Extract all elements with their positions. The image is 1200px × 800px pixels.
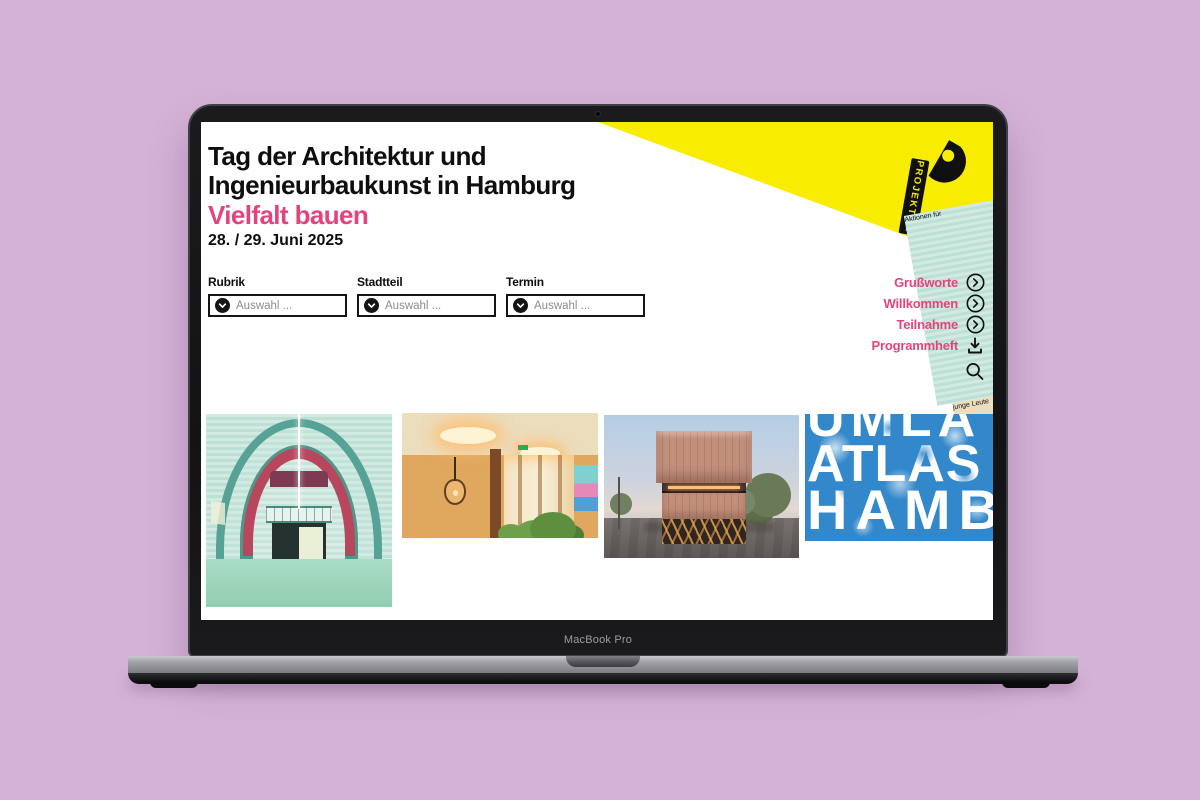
filter-termin-value: Auswahl ... (534, 300, 590, 312)
nav-grussworte[interactable]: Grußworte (894, 272, 985, 293)
search-icon (965, 361, 985, 381)
webcam-icon (596, 112, 600, 116)
page-title: Tag der Architektur und Ingenieurbaukuns… (208, 142, 575, 200)
nav-teilnahme[interactable]: Teilnahme (896, 314, 985, 335)
filter-stadtteil-label: Stadtteil (357, 275, 496, 289)
ceiling-light (440, 427, 496, 444)
chevron-circle-icon (965, 273, 985, 293)
filter-termin-label: Termin (506, 275, 645, 289)
laptop-base-underside (128, 673, 1078, 684)
chevron-down-icon (513, 298, 528, 313)
tree (610, 493, 632, 515)
nav-willkommen[interactable]: Willkommen (884, 293, 985, 314)
chevron-down-icon (364, 298, 379, 313)
nav-grussworte-label: Grußworte (894, 275, 958, 290)
laptop-base (128, 656, 1078, 673)
filter-rubrik-dropdown[interactable]: Auswahl ... (208, 294, 347, 317)
lid-notch (566, 656, 640, 667)
search-button[interactable] (965, 359, 985, 383)
browser-screen: PROJEKTOR Aktionen für junge Leute Tag d… (201, 122, 993, 620)
filter-termin: Termin Auswahl ... (506, 275, 645, 317)
laptop-lid: PROJEKTOR Aktionen für junge Leute Tag d… (188, 104, 1008, 657)
filter-stadtteil-dropdown[interactable]: Auswahl ... (357, 294, 496, 317)
plant (530, 512, 576, 538)
atlas-text: UMLA ATLAS HAMB (807, 414, 993, 532)
filter-stadtteil-value: Auswahl ... (385, 300, 441, 312)
filter-termin-dropdown[interactable]: Auswahl ... (506, 294, 645, 317)
chevron-circle-icon (965, 294, 985, 314)
station-floor (206, 559, 392, 607)
site-header: Tag der Architektur und Ingenieurbaukuns… (208, 142, 575, 250)
nav-programmheft[interactable]: Programmheft (872, 335, 985, 356)
nav-teilnahme-label: Teilnahme (896, 317, 958, 332)
pendant-lamp (444, 479, 466, 505)
filter-rubrik: Rubrik Auswahl ... (208, 275, 347, 317)
page-subtitle: Vielfalt bauen (208, 201, 575, 229)
filter-stadtteil: Stadtteil Auswahl ... (357, 275, 496, 317)
nav-programmheft-label: Programmheft (872, 338, 958, 353)
gallery-item-wood-interior[interactable] (402, 413, 598, 538)
projektor-logo[interactable]: PROJEKTOR Aktionen für junge Leute (891, 144, 991, 239)
building-lower-volume (662, 493, 746, 519)
nav-willkommen-label: Willkommen (884, 296, 958, 311)
plant (498, 524, 524, 538)
laptop-foot (150, 682, 198, 688)
exit-sign (518, 445, 528, 450)
gallery-item-copper-building[interactable] (604, 415, 799, 558)
gallery-item-station-arch[interactable] (206, 414, 392, 607)
filter-rubrik-label: Rubrik (208, 275, 347, 289)
event-date: 28. / 29. Juni 2025 (208, 232, 575, 250)
chevron-down-icon (215, 298, 230, 313)
laptop-foot (1002, 682, 1050, 688)
station-light-line (298, 414, 300, 509)
building-upper-volume (656, 431, 752, 483)
station-doorway (272, 523, 326, 559)
macbook-label: MacBook Pro (190, 634, 1006, 646)
chevron-circle-icon (965, 315, 985, 335)
building-window-band (662, 483, 746, 493)
desktop-background: PROJEKTOR Aktionen für junge Leute Tag d… (0, 0, 1200, 800)
filter-rubrik-value: Auswahl ... (236, 300, 292, 312)
filter-bar: Rubrik Auswahl ... Stadtteil Auswahl ...… (208, 275, 645, 317)
download-icon (965, 336, 985, 356)
building-glass-base (662, 519, 746, 544)
gallery-item-atlas-graphic[interactable]: UMLA ATLAS HAMB (805, 414, 993, 541)
side-nav: Grußworte Willkommen Teilnahme (872, 272, 985, 383)
